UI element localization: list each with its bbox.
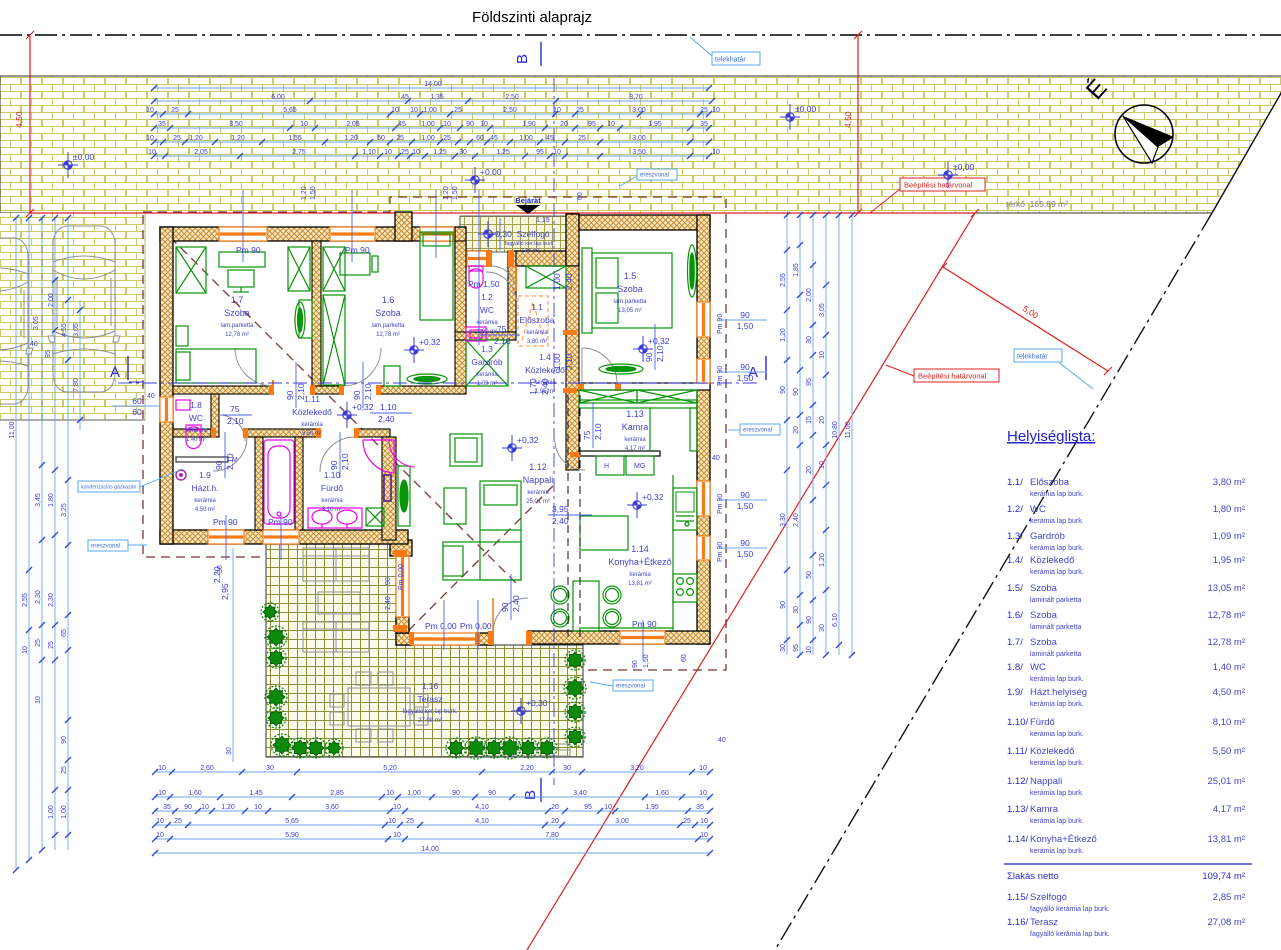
svg-text:1.2/: 1.2/ (1007, 504, 1023, 515)
svg-text:3,80 m²: 3,80 m² (527, 339, 547, 345)
svg-text:90: 90 (632, 660, 639, 668)
svg-text:Terasz: Terasz (417, 694, 442, 704)
svg-text:1,00: 1,00 (552, 273, 562, 290)
svg-text:10: 10 (391, 107, 399, 114)
svg-text:10: 10 (146, 135, 154, 142)
svg-text:kerámia: kerámia (194, 498, 216, 504)
svg-text:Házt.h.: Házt.h. (192, 483, 219, 493)
svg-text:Előszoba: Előszoba (520, 315, 555, 325)
svg-text:25: 25 (171, 107, 179, 114)
svg-text:kerámia lap burk.: kerámia lap burk. (1030, 701, 1084, 708)
svg-text:Pm 0,00: Pm 0,00 (425, 621, 457, 631)
svg-text:Közlekedő: Közlekedő (1030, 555, 1074, 566)
svg-text:2,55: 2,55 (780, 273, 787, 287)
svg-text:telekhatár: telekhatár (715, 57, 746, 64)
svg-text:1.11/: 1.11/ (1007, 746, 1028, 757)
svg-text:1,80: 1,80 (48, 493, 55, 507)
svg-text:3,05: 3,05 (33, 316, 40, 330)
svg-text:4,50: 4,50 (843, 111, 853, 128)
svg-text:2,30: 2,30 (35, 590, 42, 604)
svg-text:B: B (522, 790, 539, 800)
svg-text:WC: WC (1030, 662, 1046, 673)
svg-text:10: 10 (604, 804, 612, 811)
svg-text:1,00: 1,00 (552, 353, 562, 370)
svg-text:7,80: 7,80 (545, 832, 559, 839)
svg-text:Bejárat: Bejárat (515, 196, 541, 205)
svg-text:10: 10 (254, 804, 262, 811)
svg-text:1.4: 1.4 (539, 352, 551, 362)
svg-text:kerámia: kerámia (526, 330, 548, 336)
svg-text:2,10: 2,10 (296, 383, 306, 400)
svg-text:10: 10 (35, 696, 42, 704)
svg-text:60: 60 (132, 407, 142, 417)
svg-text:10,80: 10,80 (832, 421, 839, 439)
svg-text:8,10 m²: 8,10 m² (322, 507, 342, 513)
svg-text:Beépítési határvonal: Beépítési határvonal (904, 181, 973, 190)
svg-text:kerámia: kerámia (527, 490, 549, 496)
svg-text:20: 20 (560, 121, 568, 128)
svg-text:kerámia: kerámia (629, 572, 651, 578)
svg-text:3,00: 3,00 (615, 818, 629, 825)
svg-text:1,20: 1,20 (231, 135, 245, 142)
svg-text:30: 30 (459, 149, 467, 156)
svg-text:2,85 m²: 2,85 m² (1213, 892, 1245, 903)
svg-text:11,00: 11,00 (9, 421, 16, 438)
svg-text:Előszoba: Előszoba (1030, 477, 1070, 488)
svg-text:40: 40 (712, 455, 720, 462)
svg-text:90: 90 (740, 362, 750, 372)
svg-text:WC: WC (189, 413, 203, 423)
svg-text:1,10: 1,10 (362, 149, 376, 156)
svg-text:2,85: 2,85 (330, 790, 344, 797)
svg-text:kerámia lap burk.: kerámia lap burk. (1030, 818, 1084, 825)
svg-text:Kamra: Kamra (622, 422, 649, 432)
svg-text:térkő 165,89 m²: térkő 165,89 m² (1006, 199, 1068, 209)
svg-text:3,05: 3,05 (819, 303, 826, 317)
svg-text:4,10: 4,10 (475, 818, 489, 825)
svg-text:40: 40 (30, 341, 38, 348)
svg-text:90: 90 (793, 388, 800, 396)
svg-text:13,81 m²: 13,81 m² (1208, 834, 1246, 845)
svg-text:1.13/: 1.13/ (1007, 804, 1028, 815)
svg-text:Gardrób: Gardrób (1030, 531, 1065, 542)
svg-text:10: 10 (819, 461, 826, 469)
svg-text:10: 10 (700, 818, 708, 825)
svg-text:2,95: 2,95 (220, 583, 230, 600)
svg-text:kerámia: kerámia (476, 320, 498, 326)
svg-text:15: 15 (806, 416, 813, 424)
svg-text:3,60: 3,60 (325, 804, 339, 811)
svg-text:90: 90 (806, 616, 813, 624)
svg-text:fagyálló kerámia lap burk.: fagyálló kerámia lap burk. (1030, 931, 1110, 938)
svg-text:3,25: 3,25 (61, 503, 68, 517)
svg-text:30: 30 (819, 624, 826, 632)
svg-text:3,00: 3,00 (632, 135, 646, 142)
svg-text:5,65: 5,65 (285, 818, 299, 825)
svg-text:10: 10 (393, 804, 401, 811)
svg-text:Pm 90: Pm 90 (717, 366, 724, 386)
svg-text:40: 40 (718, 737, 726, 744)
svg-text:10: 10 (156, 818, 164, 825)
svg-text:60: 60 (577, 192, 584, 200)
svg-text:Pm 0,00: Pm 0,00 (398, 564, 405, 590)
svg-text:2,05: 2,05 (194, 149, 208, 156)
svg-text:1,20: 1,20 (221, 804, 235, 811)
svg-text:1,50: 1,50 (737, 321, 754, 331)
svg-text:13,05 m²: 13,05 m² (618, 308, 642, 314)
svg-text:95: 95 (793, 644, 800, 652)
svg-text:1.14: 1.14 (631, 544, 649, 554)
svg-text:10: 10 (819, 351, 826, 359)
svg-text:35: 35 (158, 121, 166, 128)
svg-text:3,50: 3,50 (632, 149, 646, 156)
svg-text:30: 30 (226, 747, 233, 755)
svg-text:4,17 m²: 4,17 m² (625, 446, 645, 452)
svg-text:25,01 m²: 25,01 m² (1208, 776, 1246, 787)
svg-text:Közlekedő: Közlekedő (292, 407, 332, 417)
svg-text:Szoba: Szoba (1030, 637, 1058, 648)
svg-text:90: 90 (329, 460, 339, 470)
svg-text:14,00: 14,00 (424, 81, 442, 88)
svg-text:2,10: 2,10 (593, 423, 603, 440)
svg-text:+0,32: +0,32 (419, 337, 441, 347)
svg-text:1,50: 1,50 (737, 373, 754, 383)
svg-text:20: 20 (551, 818, 559, 825)
svg-text:5,50 m²: 5,50 m² (1213, 746, 1245, 757)
svg-text:Szoba: Szoba (1030, 610, 1058, 621)
svg-text:1.14/: 1.14/ (1007, 834, 1028, 845)
svg-text:±0,00: ±0,00 (73, 152, 94, 162)
svg-text:1.12/: 1.12/ (1007, 776, 1028, 787)
svg-text:27,08 m²: 27,08 m² (418, 718, 442, 724)
svg-text:2,20: 2,20 (520, 765, 534, 772)
svg-text:1.3: 1.3 (481, 344, 493, 354)
svg-text:10: 10 (201, 804, 209, 811)
svg-text:25: 25 (406, 818, 414, 825)
svg-text:kerámia lap burk.: kerámia lap burk. (1030, 491, 1084, 498)
svg-text:Pm 90: Pm 90 (717, 542, 724, 562)
svg-text:Pm 90: Pm 90 (717, 494, 724, 514)
svg-text:25: 25 (578, 135, 586, 142)
svg-text:laminált parketta: laminált parketta (1030, 651, 1081, 658)
svg-text:1.16/: 1.16/ (1007, 917, 1028, 928)
svg-text:2,00: 2,00 (48, 293, 55, 307)
svg-text:kerámia lap burk.: kerámia lap burk. (1030, 518, 1084, 525)
svg-text:3,40: 3,40 (573, 790, 587, 797)
svg-text:1,70: 1,70 (528, 378, 538, 395)
svg-text:25: 25 (61, 766, 68, 774)
svg-text:90: 90 (780, 601, 787, 609)
svg-text:kerámia: kerámia (301, 422, 323, 428)
svg-text:25: 25 (401, 149, 409, 156)
svg-text:3,20: 3,20 (630, 765, 644, 772)
svg-text:2,00: 2,00 (806, 288, 813, 302)
svg-text:20: 20 (806, 466, 813, 474)
svg-text:2,40: 2,40 (511, 595, 521, 612)
svg-text:35: 35 (696, 804, 704, 811)
svg-text:75: 75 (582, 430, 592, 440)
svg-text:ereszvonal: ereszvonal (743, 428, 772, 434)
svg-text:1,25: 1,25 (496, 149, 510, 156)
svg-text:1,50: 1,50 (737, 501, 754, 511)
svg-text:kerámia lap burk.: kerámia lap burk. (1030, 790, 1084, 797)
svg-text:50: 50 (806, 571, 813, 579)
svg-text:Szélfogó: Szélfogó (1030, 892, 1067, 903)
svg-text:5,20: 5,20 (383, 765, 397, 772)
svg-text:1,00: 1,00 (48, 805, 55, 819)
svg-text:1.7: 1.7 (231, 295, 244, 305)
svg-text:1,25: 1,25 (433, 149, 447, 156)
svg-text:2,05: 2,05 (346, 121, 360, 128)
svg-text:Konyha+Étkező: Konyha+Étkező (1030, 834, 1097, 845)
svg-text:1,00: 1,00 (423, 107, 437, 114)
svg-text:Közlekedő: Közlekedő (1030, 746, 1074, 757)
svg-text:1,50: 1,50 (310, 186, 317, 200)
svg-text:1,20: 1,20 (301, 186, 308, 200)
svg-text:kerámia: kerámia (624, 437, 646, 443)
svg-text:95: 95 (806, 378, 813, 386)
svg-text:4,50 m²: 4,50 m² (195, 507, 215, 513)
svg-text:2,85 m²: 2,85 m² (521, 248, 540, 254)
svg-text:Pm 90: Pm 90 (345, 245, 370, 255)
svg-text:2,40: 2,40 (793, 513, 800, 527)
svg-text:Gardrób: Gardrób (471, 357, 502, 367)
svg-text:90: 90 (452, 790, 460, 797)
svg-text:1,00: 1,00 (519, 135, 533, 142)
svg-text:Pm 90: Pm 90 (236, 245, 261, 255)
svg-text:90: 90 (488, 790, 496, 797)
svg-text:50: 50 (377, 135, 385, 142)
svg-text:75: 75 (497, 324, 507, 334)
svg-text:90: 90 (184, 804, 192, 811)
svg-text:8,10 m²: 8,10 m² (1213, 717, 1245, 728)
svg-text:10: 10 (412, 149, 420, 156)
svg-text:1.8/: 1.8/ (1007, 662, 1023, 673)
svg-text:1,50: 1,50 (452, 186, 459, 200)
svg-text:30: 30 (806, 336, 813, 344)
svg-text:Nappali: Nappali (523, 475, 554, 485)
svg-text:2,40: 2,40 (564, 273, 574, 290)
svg-text:2,50: 2,50 (505, 94, 519, 101)
svg-text:13,81 m²: 13,81 m² (628, 581, 652, 587)
svg-text:Földszinti alaprajz: Földszinti alaprajz (472, 9, 592, 26)
svg-text:Terasz: Terasz (1030, 917, 1058, 928)
svg-text:10: 10 (386, 790, 394, 797)
svg-text:90: 90 (352, 390, 362, 400)
svg-text:1,20: 1,20 (344, 135, 358, 142)
svg-text:20: 20 (551, 804, 559, 811)
svg-text:+0,30 Szélfogó: +0,30 Szélfogó (490, 229, 550, 239)
svg-text:1.7/: 1.7/ (1007, 637, 1023, 648)
svg-text:2,40: 2,40 (385, 596, 392, 610)
svg-text:laminált parketta: laminált parketta (1030, 597, 1081, 604)
svg-text:3,95: 3,95 (552, 504, 569, 514)
svg-text:30: 30 (780, 644, 787, 652)
svg-text:+0,32: +0,32 (642, 492, 664, 502)
svg-text:3,50: 3,50 (229, 121, 243, 128)
svg-text:90: 90 (500, 602, 510, 612)
svg-text:2,10: 2,10 (655, 345, 665, 362)
svg-text:Szoba: Szoba (375, 308, 401, 318)
svg-text:5,65: 5,65 (283, 107, 297, 114)
svg-text:95: 95 (536, 149, 544, 156)
svg-text:10: 10 (158, 790, 166, 797)
svg-text:45: 45 (401, 94, 409, 101)
svg-text:12,78 m²: 12,78 m² (1208, 610, 1246, 621)
svg-text:10: 10 (712, 107, 720, 114)
svg-text:90: 90 (740, 310, 750, 320)
svg-text:10: 10 (699, 765, 707, 772)
svg-text:1.10/: 1.10/ (1007, 717, 1028, 728)
svg-text:25: 25 (173, 135, 181, 142)
svg-text:1,00: 1,00 (421, 135, 435, 142)
svg-text:4,17 m²: 4,17 m² (1213, 804, 1245, 815)
svg-text:1,80 m²: 1,80 m² (1213, 504, 1245, 515)
svg-text:kerámia: kerámia (185, 428, 207, 434)
svg-text:1,15: 1,15 (536, 217, 550, 224)
svg-text:1.9: 1.9 (199, 470, 211, 480)
svg-text:1.1/: 1.1/ (1007, 477, 1023, 488)
svg-text:+0,30: +0,30 (526, 698, 548, 708)
svg-text:1.12: 1.12 (529, 462, 547, 472)
svg-text:10: 10 (607, 121, 615, 128)
svg-text:25: 25 (576, 107, 584, 114)
svg-text:1,35: 1,35 (430, 94, 444, 101)
svg-text:109,74 m²: 109,74 m² (1202, 871, 1245, 882)
svg-text:fagyálló ker.lap burk.: fagyálló ker.lap burk. (505, 241, 556, 247)
svg-text:11,00: 11,00 (845, 421, 852, 438)
svg-text:1.5/: 1.5/ (1007, 583, 1023, 594)
svg-text:WC: WC (480, 305, 494, 315)
svg-text:13,05 m²: 13,05 m² (1208, 583, 1246, 594)
svg-text:4,50: 4,50 (14, 111, 24, 128)
svg-text:10: 10 (480, 121, 488, 128)
svg-text:90: 90 (780, 386, 787, 394)
svg-text:3,05: 3,05 (73, 323, 80, 337)
svg-text:25: 25 (35, 639, 42, 647)
svg-text:10: 10 (553, 149, 561, 156)
svg-text:20: 20 (819, 416, 826, 424)
svg-text:40: 40 (147, 393, 155, 400)
svg-text:10: 10 (700, 832, 708, 839)
svg-text:1,20: 1,20 (189, 135, 203, 142)
svg-text:1,20: 1,20 (443, 186, 450, 200)
svg-text:10: 10 (300, 121, 308, 128)
svg-text:ereszvonal: ereszvonal (616, 684, 645, 690)
svg-text:1,50: 1,50 (643, 654, 650, 668)
svg-text:1.4/: 1.4/ (1007, 555, 1023, 566)
svg-text:Konyha+Étkező: Konyha+Étkező (608, 557, 671, 567)
svg-text:12,78 m²: 12,78 m² (225, 332, 249, 338)
svg-text:H: H (604, 463, 609, 470)
svg-text:90: 90 (466, 121, 474, 128)
svg-text:1.5: 1.5 (624, 271, 637, 281)
svg-text:90: 90 (740, 490, 750, 500)
svg-text:2,10: 2,10 (340, 453, 350, 470)
svg-text:12,78 m²: 12,78 m² (1208, 637, 1246, 648)
svg-text:Pm 90: Pm 90 (717, 314, 724, 334)
svg-text:lam.parketta: lam.parketta (371, 323, 405, 329)
svg-text:5,50 m²: 5,50 m² (302, 431, 322, 437)
svg-text:25: 25 (683, 818, 691, 825)
svg-text:1.3/: 1.3/ (1007, 531, 1023, 542)
svg-text:ereszvonal: ereszvonal (640, 173, 669, 179)
svg-text:±0,00: ±0,00 (795, 104, 816, 114)
svg-text:2,10: 2,10 (225, 453, 235, 470)
svg-text:95: 95 (45, 350, 52, 358)
svg-text:25: 25 (48, 641, 55, 649)
svg-text:65: 65 (61, 629, 68, 637)
svg-text:2,60: 2,60 (200, 765, 214, 772)
svg-text:1.6: 1.6 (382, 295, 395, 305)
svg-text:Szoba: Szoba (224, 308, 250, 318)
svg-text:1.8: 1.8 (190, 400, 202, 410)
svg-text:Pm 90: Pm 90 (268, 517, 293, 527)
svg-text:2,40: 2,40 (552, 516, 569, 526)
svg-text:lam.parketta: lam.parketta (220, 323, 254, 329)
svg-text:1.11: 1.11 (304, 394, 320, 404)
svg-text:2,10: 2,10 (227, 416, 244, 426)
svg-text:60: 60 (132, 396, 142, 406)
svg-text:kerámia lap burk.: kerámia lap burk. (1030, 848, 1084, 855)
svg-text:1,90: 1,90 (522, 121, 536, 128)
svg-text:1,80 m²: 1,80 m² (477, 329, 497, 335)
svg-text:1,85: 1,85 (793, 263, 800, 277)
svg-text:Szoba: Szoba (617, 284, 643, 294)
svg-text:25: 25 (454, 107, 462, 114)
svg-text:1.9/: 1.9/ (1007, 687, 1023, 698)
svg-text:4,55: 4,55 (61, 323, 68, 337)
svg-text:1,20: 1,20 (819, 553, 826, 567)
svg-text:25: 25 (174, 818, 182, 825)
svg-text:1,10: 1,10 (380, 402, 397, 412)
svg-text:ereszvonal: ereszvonal (91, 544, 120, 550)
svg-text:1,95: 1,95 (645, 804, 659, 811)
svg-text:fagyálló kerámia lap burk.: fagyálló kerámia lap burk. (1030, 906, 1110, 913)
svg-text:95: 95 (588, 121, 596, 128)
svg-text:1.1: 1.1 (531, 302, 543, 312)
svg-text:2,55: 2,55 (22, 593, 29, 607)
svg-text:90: 90 (285, 390, 295, 400)
svg-text:Pm 1,50: Pm 1,50 (468, 279, 500, 289)
svg-text:1.2: 1.2 (481, 292, 493, 302)
svg-text:1,09 m²: 1,09 m² (1213, 531, 1245, 542)
svg-text:WC: WC (1030, 504, 1046, 515)
svg-text:Pm 0,00: Pm 0,00 (460, 621, 492, 631)
svg-text:1.6/: 1.6/ (1007, 610, 1023, 621)
svg-text:±0,00: ±0,00 (953, 162, 974, 172)
svg-text:45: 45 (398, 121, 406, 128)
svg-text:1.10: 1.10 (324, 470, 341, 480)
svg-text:1,45: 1,45 (249, 790, 263, 797)
svg-text:90: 90 (644, 352, 654, 362)
svg-text:6,00: 6,00 (271, 94, 285, 101)
svg-text:fagyálló ker.lap burk.: fagyálló ker.lap burk. (402, 709, 457, 715)
svg-text:kerámia lap burk.: kerámia lap burk. (1030, 569, 1084, 576)
svg-text:2,50: 2,50 (503, 107, 517, 114)
svg-text:Fürdő: Fürdő (321, 483, 343, 493)
svg-text:45: 45 (546, 135, 554, 142)
svg-text:6,10: 6,10 (832, 613, 839, 627)
svg-text:90: 90 (214, 460, 224, 470)
svg-text:4,10: 4,10 (475, 804, 489, 811)
svg-text:Nappali: Nappali (1030, 776, 1062, 787)
svg-text:10: 10 (22, 646, 29, 654)
svg-text:2,10: 2,10 (494, 336, 511, 346)
svg-text:30: 30 (793, 606, 800, 614)
svg-text:1,40 m²: 1,40 m² (1213, 662, 1245, 673)
svg-text:kondenzációs gázkazán: kondenzációs gázkazán (81, 485, 136, 491)
